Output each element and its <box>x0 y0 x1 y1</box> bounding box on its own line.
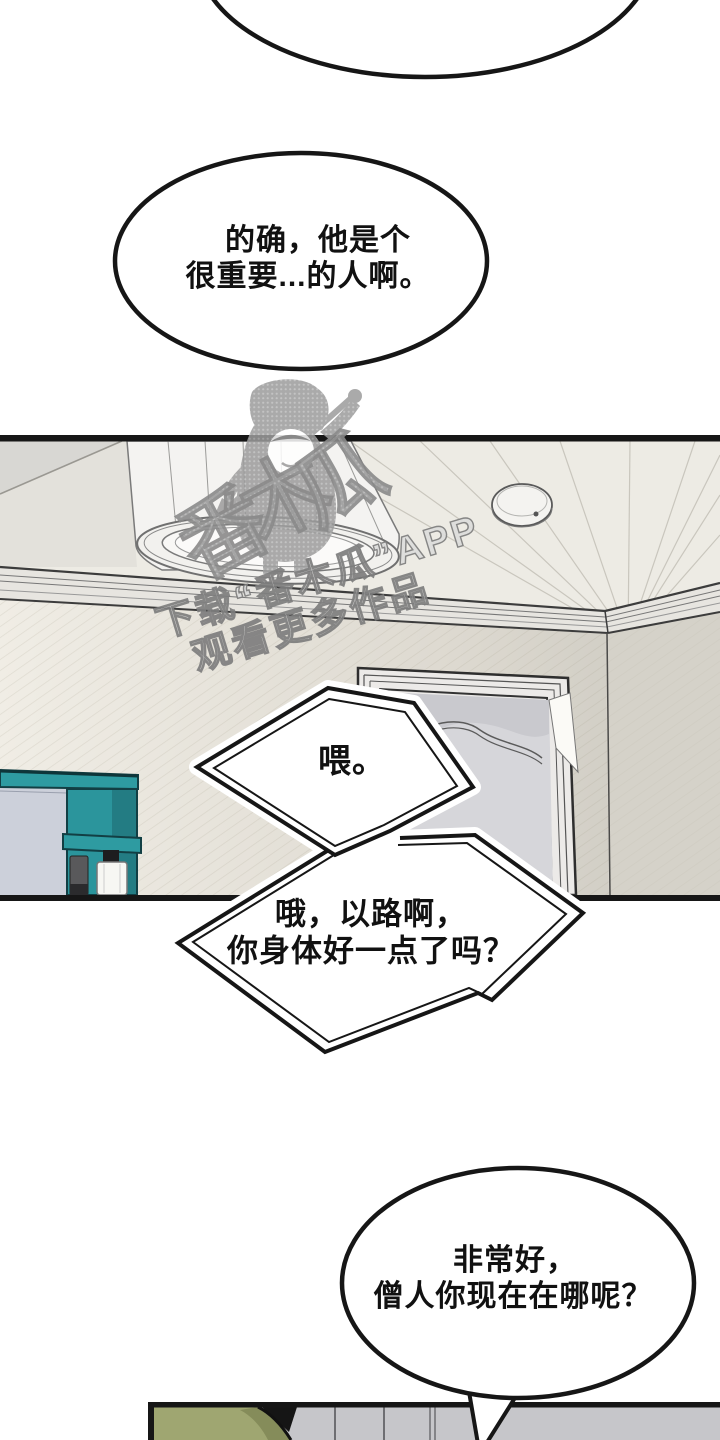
mirror <box>0 787 67 895</box>
bubble-3-text-line-2: 你身体好一点了吗？ <box>227 926 515 971</box>
panel2-border-top <box>148 1402 720 1408</box>
cabinet <box>0 770 141 895</box>
panel-bottom <box>148 1402 720 1440</box>
panel2-border-left <box>148 1402 154 1440</box>
bottle-dark <box>70 856 88 895</box>
bubble-4-text-line-2: 僧人你现在在哪呢？ <box>374 1271 653 1315</box>
smoke-detector <box>492 484 552 527</box>
speech-bubble-top-partial <box>197 0 653 77</box>
comic-page: 番 木 瓜 下载“番木瓜”APP 观看更多作品 的确，他是个 很重要...的人啊… <box>0 0 720 1440</box>
bubble-2-text: 喂。 <box>318 734 386 782</box>
bubble-1-text-line-2: 很重要...的人啊。 <box>185 251 430 295</box>
